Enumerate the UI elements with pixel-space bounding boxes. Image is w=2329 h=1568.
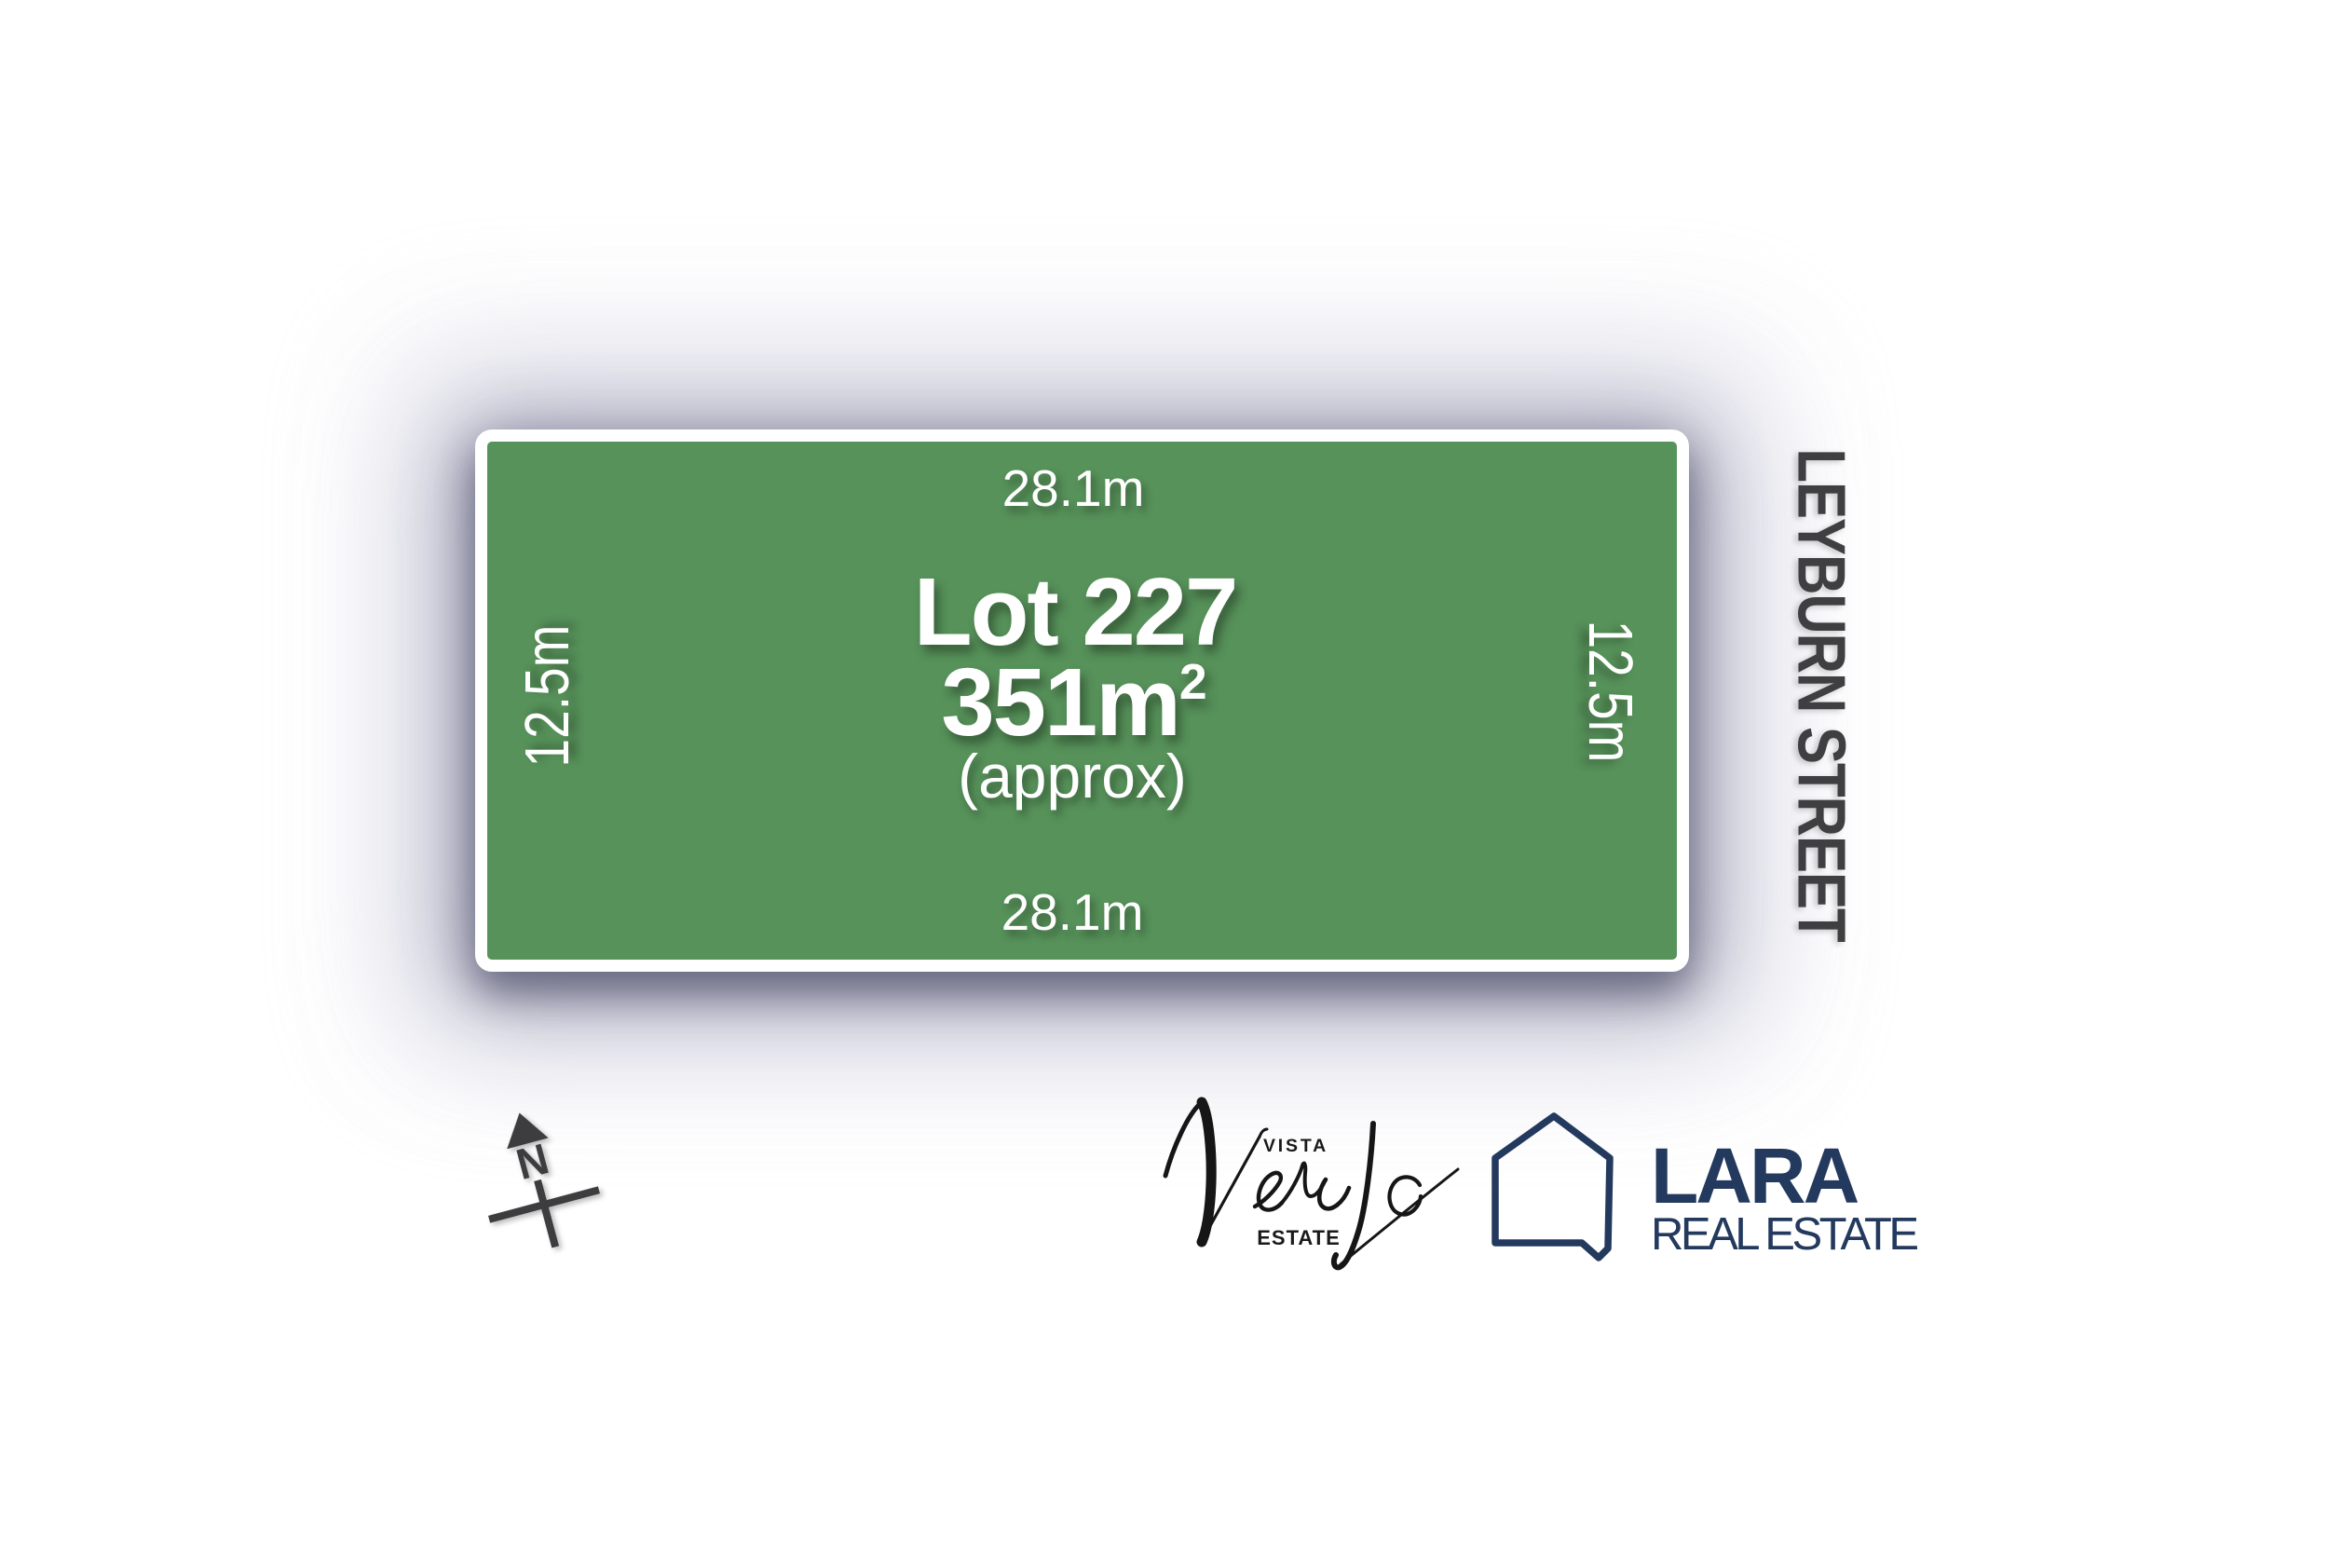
svg-text:N: N bbox=[511, 1134, 554, 1189]
svg-text:VISTA: VISTA bbox=[1263, 1136, 1328, 1156]
svg-text:REAL ESTATE: REAL ESTATE bbox=[1651, 1209, 1917, 1260]
svg-text:ESTATE: ESTATE bbox=[1257, 1226, 1341, 1249]
svg-text:LARA: LARA bbox=[1651, 1132, 1859, 1220]
